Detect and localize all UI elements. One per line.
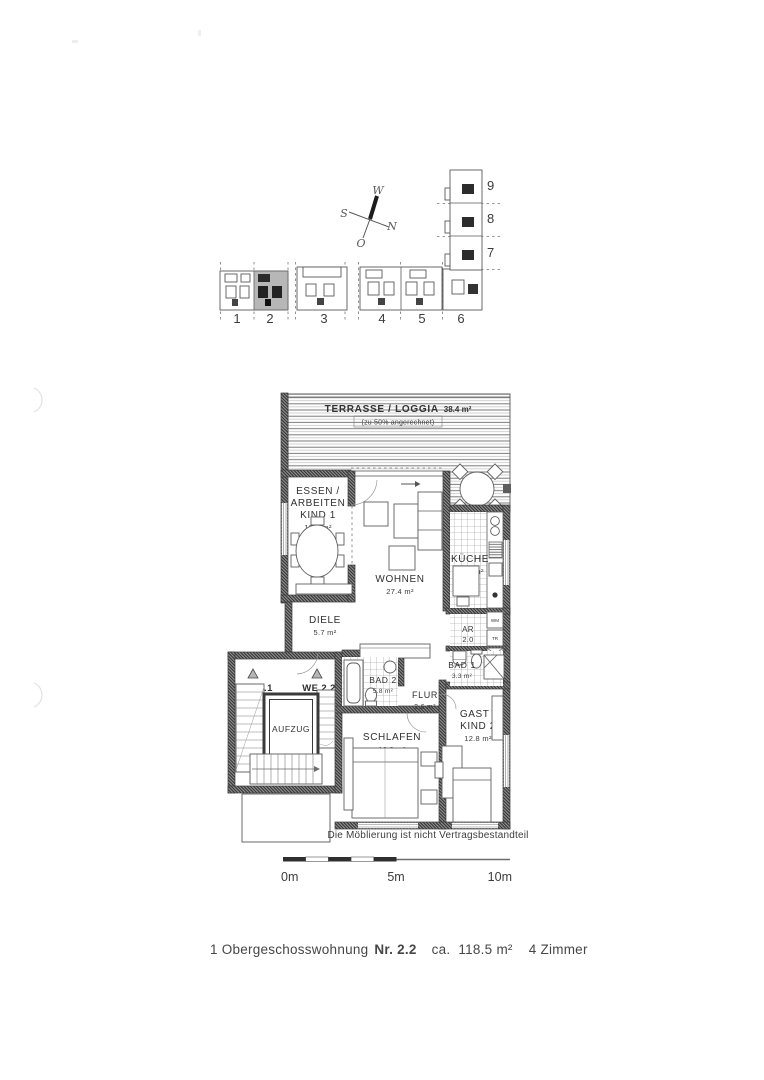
stairs-bottom [250, 754, 322, 784]
stove [489, 542, 502, 558]
gast-label-1: GAST / [460, 709, 496, 720]
compass-east-label: O [356, 237, 365, 250]
site-unit-number-2: 2 [266, 311, 273, 326]
nightstand-2 [421, 790, 437, 804]
diele-label: DIELE [309, 615, 341, 626]
diele-area: 5.7 m² [313, 628, 336, 637]
gast-wardrobe [492, 696, 503, 740]
tr-label: TR [492, 636, 499, 641]
essen-label-2: ARBEITEN [291, 498, 346, 509]
site-block-1-2 [220, 271, 288, 310]
site-unit-number-4: 4 [378, 311, 385, 326]
floorplan-svg: W S N O [0, 0, 764, 1080]
scan-artifacts [34, 30, 201, 707]
scale-10m-label: 10m [488, 870, 512, 884]
ar-label: AR [462, 625, 474, 634]
site-unit-number-9: 9 [487, 178, 494, 193]
scale-0m-label: 0m [281, 870, 298, 884]
scanned-floorplan-page: W S N O [0, 0, 764, 1080]
caption-type: 1 Obergeschosswohnung [210, 942, 368, 957]
sofa-group [364, 492, 442, 570]
scale-bar: 0m 5m 10m [281, 857, 512, 884]
we21-entry-triangle [248, 669, 258, 678]
caption-rooms: 4 Zimmer [529, 942, 588, 957]
terrace-door-arrow [401, 481, 421, 487]
compass-south-label: S [340, 207, 348, 220]
site-unit-number-6: 6 [457, 311, 464, 326]
wardrobe [344, 738, 353, 810]
schlafen-label: SCHLAFEN [363, 732, 421, 743]
room-bad1: BAD 1 3.3 m² [448, 650, 504, 686]
dining-table [291, 517, 344, 585]
site-block-3 [297, 267, 347, 310]
kueche-label: KÜCHE [451, 553, 489, 565]
stairs-right [317, 690, 335, 748]
bad1-label: BAD 1 [448, 660, 476, 670]
bad2-area: 5.8 m² [373, 688, 394, 695]
caption-area: 118.5 m² [458, 942, 513, 957]
bed-double [352, 748, 418, 818]
kitchen-table [453, 566, 479, 596]
room-bad2: BAD 2 5.8 m² [342, 657, 398, 706]
scale-5m-label: 5m [387, 870, 404, 884]
bad2-label: BAD 2 [369, 675, 397, 685]
we22-entry-triangle [312, 669, 322, 678]
room-flur: FLUR 2.6 m² [412, 690, 438, 711]
page-caption: 1 ObergeschosswohnungNr. 2.2ca.118.5 m²4… [210, 942, 588, 957]
wohnen-label: WOHNEN [375, 574, 424, 585]
lower-balcony [242, 794, 330, 842]
aufzug-label: AUFZUG [272, 724, 310, 734]
flur-area: 2.6 m² [414, 704, 436, 711]
caption-ca: ca. [432, 942, 451, 957]
site-block-6-wing [443, 170, 482, 310]
room-diele: DIELE 5.7 m² [309, 615, 341, 637]
gast-area: 12.8 m² [464, 734, 492, 743]
flur-label: FLUR [412, 690, 438, 700]
site-unit-number-3: 3 [320, 311, 327, 326]
room-schlafen: SCHLAFEN 16.3 m² [344, 732, 437, 818]
site-unit-number-5: 5 [418, 311, 425, 326]
floor-plan: TERRASSE / LOGGIA38.4 m² (zu 50% angerec… [228, 393, 529, 842]
compass-rose: W S N O [340, 184, 397, 250]
compass-west-label: W [372, 184, 385, 197]
site-block-4-5 [360, 267, 442, 310]
gast-label-2: KIND 2 [460, 721, 496, 732]
hall-sideboard [360, 644, 430, 658]
caption-number: Nr. 2.2 [374, 942, 416, 957]
furnishing-note: Die Möblierung ist nicht Vertragsbestand… [327, 830, 528, 841]
terrace-note: (zu 50% angerechnet) [362, 420, 435, 427]
essen-label-1: ESSEN / [296, 486, 340, 497]
wm-label: WM [491, 618, 499, 623]
room-essen: ESSEN / ARBEITEN KIND 1 12.2 m² [291, 486, 352, 594]
compass-north-label: N [386, 220, 397, 233]
stairwell: WE 2.1 WE 2.2 AUFZUG [236, 669, 336, 842]
site-unit-number-8: 8 [487, 211, 494, 226]
room-wohnen: WOHNEN 27.4 m² [360, 492, 442, 658]
gast-bed [453, 768, 491, 822]
site-unit-number-1: 1 [233, 311, 240, 326]
room-kueche: KÜCHE 10.3 m² [450, 512, 503, 608]
elevator: AUFZUG [264, 694, 318, 762]
sideboard [296, 584, 352, 594]
wohnen-area: 27.4 m² [386, 587, 414, 596]
terrace-label: TERRASSE / LOGGIA38.4 m² [325, 404, 472, 415]
bad1-area: 3.3 m² [452, 673, 473, 680]
ar-area: 2.0 [462, 635, 473, 644]
site-unit-number-7: 7 [487, 245, 494, 260]
